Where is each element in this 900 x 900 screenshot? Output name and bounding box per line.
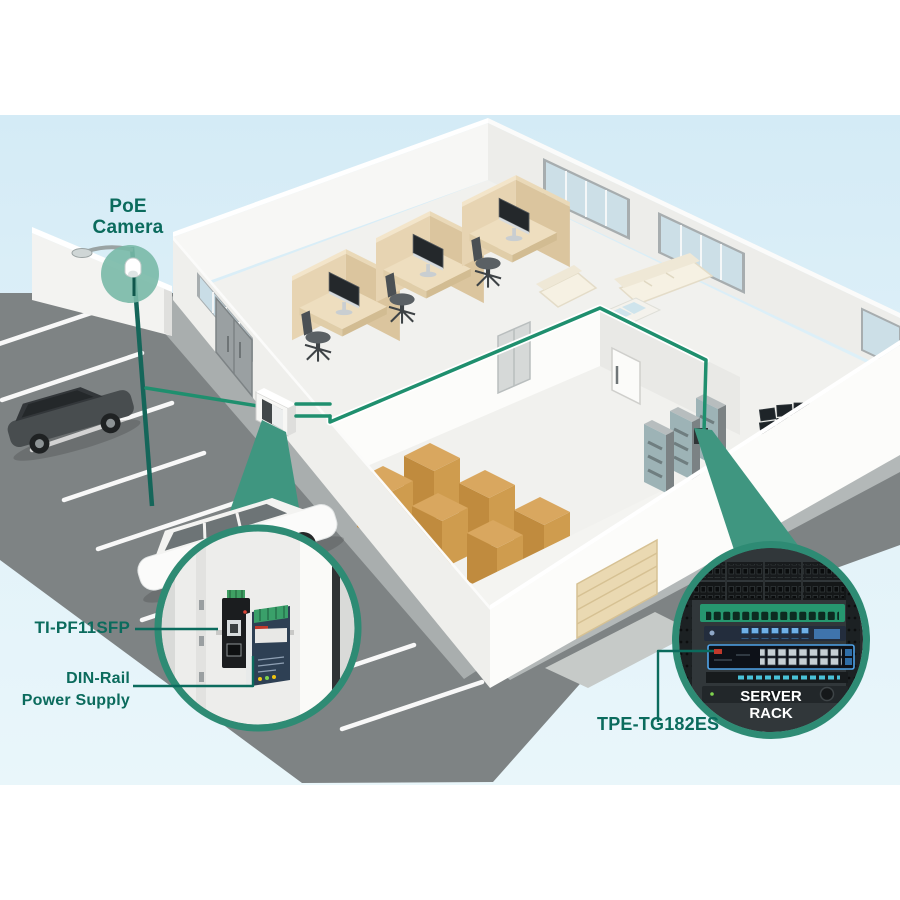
poe-camera-label: PoE Camera <box>58 196 198 238</box>
upper-switch <box>704 626 846 641</box>
server-rack-label-line1: SERVER <box>711 688 831 705</box>
ti-pf11sfp-label: TI-PF11SFP <box>8 618 130 638</box>
green-patch-panel <box>700 604 845 622</box>
tpe-tg182es-label: TPE-TG182ES <box>597 714 719 735</box>
tpe-switch-icon <box>708 645 854 669</box>
server-rack-label-line2: RACK <box>711 705 831 722</box>
media-device <box>706 672 848 683</box>
din-rail-label-line2: Power Supply <box>0 690 130 712</box>
poe-camera-label-line2: Camera <box>58 217 198 238</box>
server-rack-label: SERVER RACK <box>711 688 831 722</box>
din-rail-label-line1: DIN-Rail <box>0 668 130 690</box>
application-diagram: PoE Camera TI-PF11SFP DIN-Rail Power Sup… <box>0 0 900 900</box>
din-rail-psu-label: DIN-Rail Power Supply <box>0 668 130 712</box>
scene-illustration <box>0 0 900 900</box>
poe-camera-label-line1: PoE <box>58 196 198 217</box>
fiber-media-converter-icon <box>222 590 250 668</box>
